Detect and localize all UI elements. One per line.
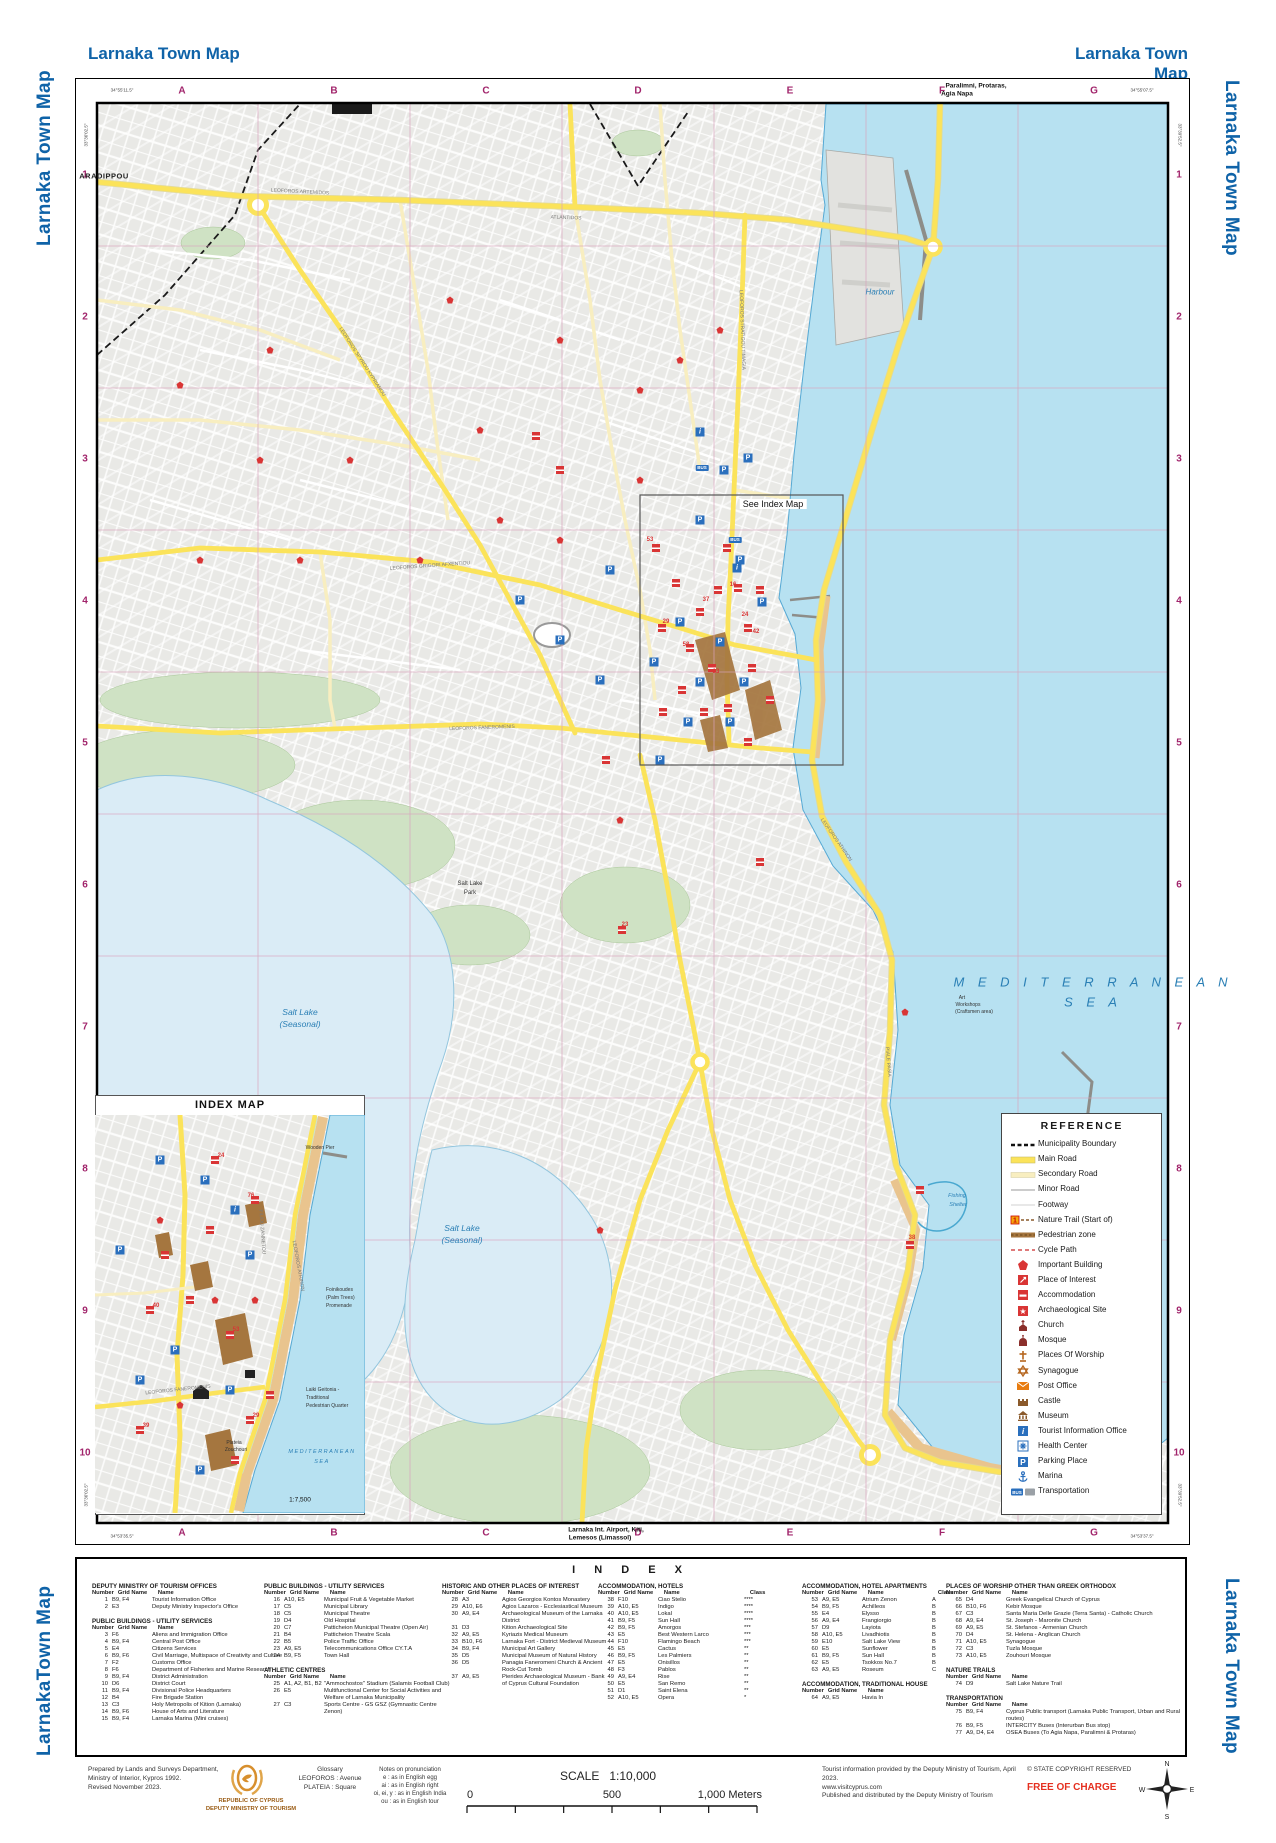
index-section-title: ACCOMMODATION, HOTEL APARTMENTS	[802, 1583, 956, 1590]
index-header-row: NumberGrid NameName	[946, 1590, 1190, 1597]
side-title-top-left: Larnaka Town Map	[34, 70, 56, 246]
svg-text:1,000 Meters: 1,000 Meters	[698, 1789, 763, 1801]
index-section: ACCOMMODATION, HOTEL APARTMENTSNumberGri…	[802, 1583, 956, 1674]
worship-icon	[1008, 1349, 1038, 1363]
acc-icon	[1008, 1288, 1038, 1302]
index-section-title: ACCOMMODATION, TRADITIONAL HOUSE	[802, 1681, 956, 1688]
index-row: 22B5Police Traffic Office	[264, 1639, 458, 1646]
cyprus-emblem	[228, 1760, 266, 1798]
interest-icon	[1008, 1273, 1038, 1287]
legend-item-ped: Pedestrian zone	[1008, 1228, 1156, 1243]
legend-item-label: Tourist Information Office	[1038, 1427, 1150, 1436]
index-row: 46B9, F5Les Palmiers**	[598, 1653, 768, 1660]
svg-text:W: W	[1139, 1787, 1146, 1794]
index-row: 31D3Kition Archaeological Site	[442, 1625, 616, 1632]
legend-item-post: Post Office	[1008, 1379, 1156, 1394]
index-row: 67C3Santa Maria Delle Grazie (Terra Sant…	[946, 1611, 1190, 1618]
index-row: 39A10, E5Indigo****	[598, 1604, 768, 1611]
post-icon	[1008, 1379, 1038, 1393]
legend-item-label: Main Road	[1038, 1155, 1150, 1164]
legend-item-label: Minor Road	[1038, 1185, 1150, 1194]
legend-item-building: Important Building	[1008, 1258, 1156, 1273]
svg-text:N: N	[1164, 1761, 1169, 1768]
republic-of-cyprus-caption: REPUBLIC OF CYPRUSDEPUTY MINISTRY OF TOU…	[196, 1798, 306, 1813]
legend-item-marina: Marina	[1008, 1469, 1156, 1484]
index-row: 40A10, E5Lokal****	[598, 1611, 768, 1618]
index-section-title: PLACES OF WORSHIP OTHER THAN GREEK ORTHO…	[946, 1583, 1190, 1590]
reference-legend: REFERENCE Municipality BoundaryMain Road…	[1001, 1113, 1162, 1515]
stadium-shape	[534, 623, 570, 647]
legend-item-info: iTourist Information Office	[1008, 1424, 1156, 1439]
index-section-title: HISTORIC AND OTHER PLACES OF INTEREST	[442, 1583, 616, 1590]
index-row: 63A9, E5RoseumC	[802, 1667, 956, 1674]
boundary-icon	[1008, 1138, 1038, 1152]
info-icon: i	[1008, 1424, 1038, 1438]
legend-item-label: Pedestrian zone	[1038, 1231, 1150, 1240]
index-column: PLACES OF WORSHIP OTHER THAN GREEK ORTHO…	[946, 1583, 1190, 1744]
index-row: 19D4Old Hospital	[264, 1618, 458, 1625]
index-row: 61B9, F5Sun HallB	[802, 1653, 956, 1660]
synagogue-icon	[1008, 1364, 1038, 1378]
index-header-row: NumberGrid NameName	[946, 1702, 1190, 1709]
svg-text:★: ★	[1019, 1307, 1026, 1316]
compass-rose-icon: N E S W	[1138, 1758, 1196, 1820]
index-row: 24B9, F5Town Hall	[264, 1653, 458, 1660]
legend-item-label: Secondary Road	[1038, 1170, 1150, 1179]
copyright-note: © STATE COPYRIGHT RESERVED	[1027, 1766, 1131, 1773]
larnaka-town-map-page: Larnaka Town Map Larnaka Town Map Larnak…	[0, 0, 1276, 1843]
main-icon	[1008, 1153, 1038, 1167]
legend-item-label: Mosque	[1038, 1336, 1150, 1345]
index-row: 35D5Municipal Museum of Natural History	[442, 1653, 616, 1660]
index-row: 49A9, E4Rise**	[598, 1674, 768, 1681]
legend-item-museum: Museum	[1008, 1409, 1156, 1424]
page-title: Larnaka Town Map	[88, 44, 240, 64]
index-row: 68A9, E4St. Joseph - Maronite Church	[946, 1618, 1190, 1625]
index-section: PUBLIC BUILDINGS - UTILITY SERVICESNumbe…	[264, 1583, 458, 1660]
legend-item-castle: Castle	[1008, 1394, 1156, 1409]
index-row: 34B9, F4Municipal Art Gallery	[442, 1646, 616, 1653]
index-header-row: NumberGrid NameNameClass	[598, 1590, 768, 1597]
index-row: 23A9, E5Telecommunications Office CY.T.A	[264, 1646, 458, 1653]
legend-item-label: Nature Trail (Start of)	[1038, 1216, 1150, 1225]
secondary-icon	[1008, 1168, 1038, 1182]
index-row: 73A10, E5Zouhouri Mosque	[946, 1653, 1190, 1660]
index-map-canvas	[95, 1115, 365, 1513]
legend-item-main: Main Road	[1008, 1152, 1156, 1167]
museum-icon	[1008, 1409, 1038, 1423]
castle-icon	[1008, 1394, 1038, 1408]
scale-label: SCALE 1:10,000	[560, 1768, 720, 1784]
index-section: ACCOMMODATION, TRADITIONAL HOUSENumberGr…	[802, 1681, 956, 1702]
index-row: 44F10Flamingo Beach***	[598, 1639, 768, 1646]
svg-text:P: P	[1020, 1457, 1026, 1467]
legend-item-church: Church	[1008, 1318, 1156, 1333]
index-row: 77A9, D4, E4OSEA Buses (To Agia Napa, Pa…	[946, 1730, 1190, 1737]
index-row: 70D4St. Helena - Anglican Church	[946, 1632, 1190, 1639]
legend-title: REFERENCE	[1008, 1120, 1156, 1132]
legend-item-acc: Accommodation	[1008, 1288, 1156, 1303]
svg-text:E: E	[1190, 1787, 1195, 1794]
nature-icon: 1	[1008, 1213, 1038, 1227]
legend-item-worship: Places Of Worship	[1008, 1348, 1156, 1363]
index-section: HISTORIC AND OTHER PLACES OF INTERESTNum…	[442, 1583, 616, 1688]
index-header-row: NumberGrid NameName	[442, 1590, 616, 1597]
index-row: 69A9, E5St. Stefanos - Armenian Church	[946, 1625, 1190, 1632]
index-row: 51D1Saint Elena**	[598, 1688, 768, 1695]
index-row: 59E10Salt Lake ViewB	[802, 1639, 956, 1646]
index-row: 38F10Ciao Stelio****	[598, 1597, 768, 1604]
svg-text:1: 1	[1013, 1218, 1017, 1225]
legend-item-nature: 1Nature Trail (Start of)	[1008, 1212, 1156, 1227]
index-row: 56A9, E4FrangiorgioB	[802, 1618, 956, 1625]
legend-item-label: Marina	[1038, 1472, 1150, 1481]
legend-item-health: Health Center	[1008, 1439, 1156, 1454]
index-row: 30A9, E4Archaeological Museum of the Lar…	[442, 1611, 616, 1625]
index-title: I N D E X	[77, 1564, 1185, 1576]
tourist-info-note: Tourist information provided by the Depu…	[822, 1766, 1022, 1801]
index-row: 26E5Multifunctional Center for Social Ac…	[264, 1688, 458, 1702]
index-row: 16A10, E5Municipal Fruit & Vegetable Mar…	[264, 1597, 458, 1604]
index-map-title: INDEX MAP	[95, 1099, 365, 1111]
legend-item-arch: ★Archaeological Site	[1008, 1303, 1156, 1318]
index-row: 47E5Onisillos**	[598, 1660, 768, 1667]
index-row: 43E5Best Western Larco***	[598, 1632, 768, 1639]
ped-icon	[1008, 1228, 1038, 1242]
svg-text:S: S	[1165, 1814, 1170, 1820]
legend-item-label: Museum	[1038, 1412, 1150, 1421]
index-row: 65D4Greek Evangelical Church of Cyprus	[946, 1597, 1190, 1604]
index-row: 74D9Salt Lake Nature Trail	[946, 1681, 1190, 1688]
index-header-row: NumberGrid NameName	[264, 1674, 458, 1681]
index-row: 54B9, F5AchilleosB	[802, 1604, 956, 1611]
index-row: 21B4Patticheion Theatre Scala	[264, 1632, 458, 1639]
svg-text:500: 500	[603, 1789, 621, 1801]
index-row: 37A9, E5Pierides Archaeological Museum -…	[442, 1674, 616, 1688]
index-row: 50E5San Remo**	[598, 1681, 768, 1688]
index-row: 66B10, F6Kebir Mosque	[946, 1604, 1190, 1611]
legend-item-label: Parking Place	[1038, 1457, 1150, 1466]
side-title-bottom-left: LarnakaTown Map	[34, 1586, 56, 1756]
legend-item-secondary: Secondary Road	[1008, 1167, 1156, 1182]
index-row: 45E5Cactus**	[598, 1646, 768, 1653]
prepared-by-note: Prepared by Lands and Surveys Department…	[88, 1766, 218, 1792]
legend-item-transport: BUSTransportation	[1008, 1484, 1156, 1499]
index-row: 42B9, F5Amorgos***	[598, 1625, 768, 1632]
index-row: 55E4ElyssoB	[802, 1611, 956, 1618]
index-section-title: TRANSPORTATION	[946, 1695, 1190, 1702]
health-icon	[1008, 1439, 1038, 1453]
legend-item-label: Cycle Path	[1038, 1246, 1150, 1255]
scale-bar: 0 500 1,000 Meters	[462, 1786, 767, 1818]
index-row: 41B9, F5Sun Hall****	[598, 1618, 768, 1625]
footway-icon	[1008, 1198, 1038, 1212]
arch-icon: ★	[1008, 1304, 1038, 1318]
index-section: ATHLETIC CENTRESNumberGrid NameName25A1,…	[264, 1667, 458, 1716]
index-header-row: NumberGrid NameName	[946, 1674, 1190, 1681]
legend-item-synagogue: Synagogue	[1008, 1363, 1156, 1378]
index-row: 20C7Patticheion Municipal Theatre (Open …	[264, 1625, 458, 1632]
index-row: 29A10, E6Agios Lazaros - Ecclesiastical …	[442, 1604, 616, 1611]
legend-item-label: Health Center	[1038, 1442, 1150, 1451]
index-section: NATURE TRAILSNumberGrid NameName74D9Salt…	[946, 1667, 1190, 1688]
index-row: 62E5Tsokkos No.7B	[802, 1660, 956, 1667]
parking-icon: P	[1008, 1455, 1038, 1469]
index-row: 72C3Tuzla Mosque	[946, 1646, 1190, 1653]
pronunciation-note: Notes on pronunciatione : as in English …	[360, 1766, 460, 1806]
index-row: 33B10, F6Larnaka Fort - District Medieva…	[442, 1639, 616, 1646]
index-header-row: NumberGrid NameName	[802, 1688, 956, 1695]
index-row: 48F3Pablos**	[598, 1667, 768, 1674]
legend-item-label: Church	[1038, 1321, 1150, 1330]
index-row: 71A10, E5Synagogue	[946, 1639, 1190, 1646]
legend-item-label: Municipality Boundary	[1038, 1140, 1150, 1149]
index-row: 53A9, E5Atrium ZenonA	[802, 1597, 956, 1604]
index-column: ACCOMMODATION, HOTELSNumberGrid NameName…	[598, 1583, 768, 1709]
transport-icon: BUS	[1008, 1485, 1038, 1499]
index-row: 28A3Agios Georgios Kontos Monastery	[442, 1597, 616, 1604]
legend-item-label: Places Of Worship	[1038, 1351, 1150, 1360]
legend-item-label: Castle	[1038, 1397, 1150, 1406]
index-section-title: ACCOMMODATION, HOTELS	[598, 1583, 768, 1590]
legend-item-mosque: Mosque	[1008, 1333, 1156, 1348]
legend-item-interest: Place of Interest	[1008, 1273, 1156, 1288]
church-icon	[1008, 1319, 1038, 1333]
legend-item-label: Post Office	[1038, 1382, 1150, 1391]
index-row: 64A9, E5Havia In	[802, 1695, 956, 1702]
index-header-row: NumberGrid NameName	[264, 1590, 458, 1597]
index-row: 75B9, F4Cyprus Public transport (Larnaka…	[946, 1709, 1190, 1723]
svg-text:BUS: BUS	[1012, 1490, 1022, 1495]
cycle-icon	[1008, 1243, 1038, 1257]
marina-icon	[1008, 1470, 1038, 1484]
index-column: HISTORIC AND OTHER PLACES OF INTERESTNum…	[442, 1583, 616, 1695]
legend-item-footway: Footway	[1008, 1197, 1156, 1212]
index-section-title: ATHLETIC CENTRES	[264, 1667, 458, 1674]
legend-item-label: Transportation	[1038, 1487, 1150, 1496]
legend-item-boundary: Municipality Boundary	[1008, 1137, 1156, 1152]
legend-item-label: Synagogue	[1038, 1367, 1150, 1376]
building-icon	[1008, 1258, 1038, 1272]
index-panel: I N D E X DEPUTY MINISTRY OF TOURISM OFF…	[75, 1557, 1187, 1757]
index-row: 52A10, E5Opera*	[598, 1695, 768, 1702]
index-row: 25A1, A2, B1, B2"Ammochostos" Stadium (S…	[264, 1681, 458, 1688]
index-row: 32A9, E5Kyriazis Medical Museum	[442, 1632, 616, 1639]
index-header-row: NumberGrid NameNameClass	[802, 1590, 956, 1597]
legend-item-label: Archaeological Site	[1038, 1306, 1150, 1315]
mosque-icon	[1008, 1334, 1038, 1348]
legend-item-minor: Minor Road	[1008, 1182, 1156, 1197]
side-title-bottom-right: Larnaka Town Map	[1220, 1578, 1242, 1754]
side-title-top-right: Larnaka Town Map	[1220, 80, 1242, 256]
index-section: TRANSPORTATIONNumberGrid NameName75B9, F…	[946, 1695, 1190, 1737]
index-row: 57D9LayiotaB	[802, 1625, 956, 1632]
index-row: 27C3Sports Centre - GS GSZ (Gymnastic Ce…	[264, 1702, 458, 1716]
index-row: 36D5Panagia Faneromeni Church & Ancient …	[442, 1660, 616, 1674]
svg-text:0: 0	[467, 1789, 473, 1801]
legend-item-label: Accommodation	[1038, 1291, 1150, 1300]
legend-item-parking: PParking Place	[1008, 1454, 1156, 1469]
index-column: PUBLIC BUILDINGS - UTILITY SERVICESNumbe…	[264, 1583, 458, 1723]
index-section: PLACES OF WORSHIP OTHER THAN GREEK ORTHO…	[946, 1583, 1190, 1660]
index-row: 18C5Municipal Theatre	[264, 1611, 458, 1618]
legend-item-label: Place of Interest	[1038, 1276, 1150, 1285]
index-row: 60E5SunflowerB	[802, 1646, 956, 1653]
index-section-title: NATURE TRAILS	[946, 1667, 1190, 1674]
legend-item-cycle: Cycle Path	[1008, 1243, 1156, 1258]
index-row: 76B9, F5INTERCITY Buses (Interurban Bus …	[946, 1723, 1190, 1730]
index-section-title: PUBLIC BUILDINGS - UTILITY SERVICES	[264, 1583, 458, 1590]
index-row: 58A10, E5LivadhiotisB	[802, 1632, 956, 1639]
minor-icon	[1008, 1183, 1038, 1197]
index-row: 17C5Municipal Library	[264, 1604, 458, 1611]
index-section: ACCOMMODATION, HOTELSNumberGrid NameName…	[598, 1583, 768, 1702]
index-column: ACCOMMODATION, HOTEL APARTMENTSNumberGri…	[802, 1583, 956, 1709]
free-of-charge-label: FREE OF CHARGE	[1027, 1782, 1116, 1793]
legend-item-label: Important Building	[1038, 1261, 1150, 1270]
legend-item-label: Footway	[1038, 1201, 1150, 1210]
